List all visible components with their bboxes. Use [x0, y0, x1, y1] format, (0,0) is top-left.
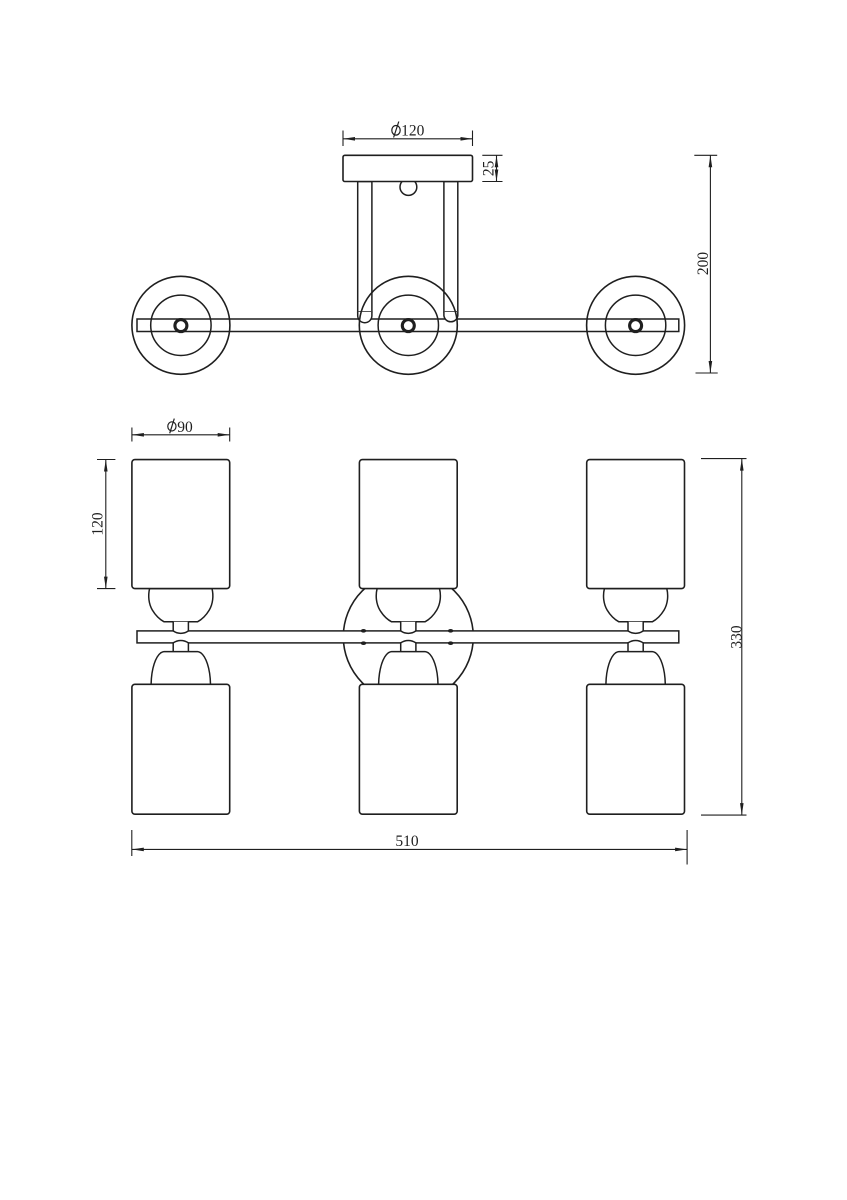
svg-text:330: 330	[728, 625, 745, 649]
svg-text:90: 90	[177, 419, 193, 436]
svg-text:120: 120	[401, 123, 425, 140]
svg-text:510: 510	[395, 833, 419, 850]
svg-text:25: 25	[480, 160, 497, 176]
svg-text:200: 200	[695, 252, 712, 276]
svg-text:120: 120	[89, 512, 106, 536]
